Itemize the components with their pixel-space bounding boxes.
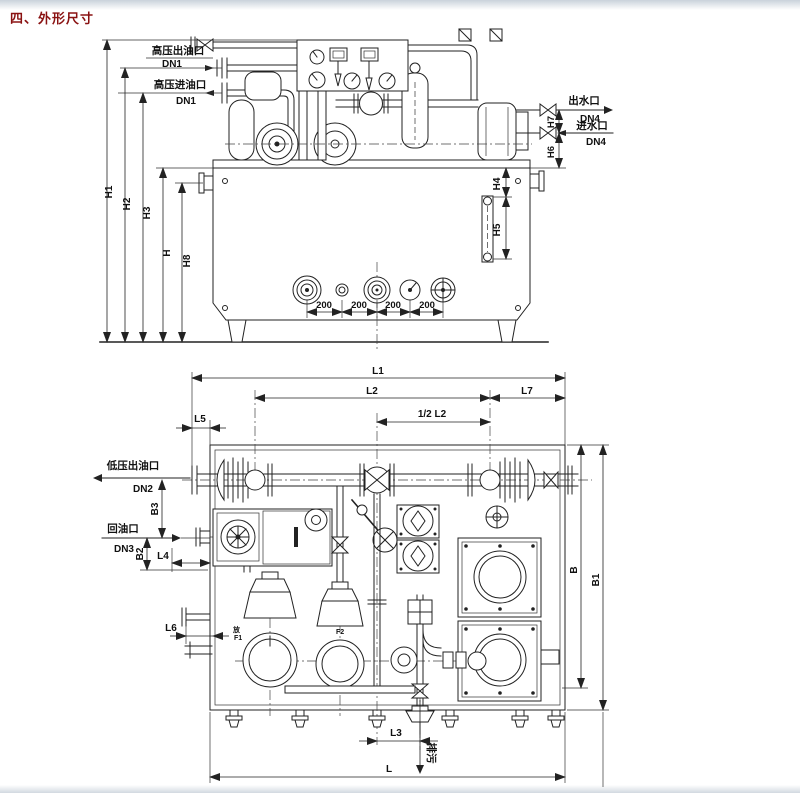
hp-inlet-dn: DN1 bbox=[176, 96, 196, 107]
dim-label-l4: L4 bbox=[157, 551, 169, 562]
dim-label-half-l2: 1/2 L2 bbox=[418, 409, 447, 420]
dim-label-l7: L7 bbox=[521, 386, 533, 397]
tag-drain-valve: 放 bbox=[232, 625, 241, 634]
spacing-label: 200 bbox=[419, 300, 435, 311]
oil-return-port: 回油口 DN3 bbox=[102, 522, 210, 555]
dim-label-l5: L5 bbox=[194, 414, 206, 425]
dim-label-h5: H5 bbox=[492, 223, 503, 236]
dim-label-b3: B3 bbox=[150, 502, 161, 515]
water-inlet-port: 进水口 DN4 bbox=[557, 119, 613, 148]
tag-f2: F2 bbox=[336, 629, 344, 636]
spacing-label: 200 bbox=[351, 300, 367, 311]
switch-icon bbox=[361, 48, 378, 61]
lp-outlet-label: 低压出油口 bbox=[106, 459, 160, 472]
dim-label-h3: H3 bbox=[142, 206, 153, 219]
drain-label: 排污 bbox=[425, 743, 438, 764]
dim-label-h8: H8 bbox=[182, 254, 193, 267]
foot bbox=[369, 710, 385, 727]
pump-top-unit-1 bbox=[458, 538, 541, 617]
dim-label-h: H bbox=[162, 249, 173, 256]
dim-label-h6: H6 bbox=[546, 146, 557, 158]
dim-label-l2: L2 bbox=[366, 386, 378, 397]
foot bbox=[442, 710, 458, 727]
tag-f1: F1 bbox=[234, 635, 242, 642]
foot bbox=[512, 710, 528, 727]
oil-return-dn: DN3 bbox=[114, 544, 134, 555]
hp-inlet-port: 高压进油口 DN1 bbox=[154, 78, 214, 107]
dim-label-b2: B2 bbox=[135, 547, 146, 560]
instrument-panel bbox=[297, 40, 408, 91]
dim-label-l6: L6 bbox=[165, 623, 177, 634]
flow-arrow-icon bbox=[557, 130, 566, 136]
dim-label-b: B bbox=[569, 566, 580, 573]
hp-inlet-label: 高压进油口 bbox=[154, 78, 207, 91]
foot bbox=[226, 710, 242, 727]
dim-label-h7: H7 bbox=[546, 116, 557, 128]
dim-label-l: L bbox=[386, 764, 392, 775]
flow-arrow-icon bbox=[416, 765, 424, 774]
plan-view: 低压出油口 DN2 回油口 DN3 排污 放 F1 F2 bbox=[93, 366, 609, 787]
dimension-drawing: 高压出油口 DN1 高压进油口 DN1 出水口 DN4 进水口 bbox=[0, 0, 800, 793]
foot bbox=[292, 710, 308, 727]
oil-return-label: 回油口 bbox=[107, 522, 139, 535]
spacing-label: 200 bbox=[316, 300, 332, 311]
switch-icon bbox=[330, 48, 347, 61]
flow-arrow-icon bbox=[172, 534, 181, 542]
flow-arrow-icon bbox=[604, 106, 613, 114]
dim-label-b1: B1 bbox=[591, 573, 602, 586]
spacing-label: 200 bbox=[385, 300, 401, 311]
side-stubs bbox=[182, 528, 212, 658]
oil-tank bbox=[100, 168, 548, 350]
lp-outlet-dn: DN2 bbox=[133, 484, 153, 495]
dim-label-h1: H1 bbox=[104, 185, 115, 198]
foot bbox=[548, 710, 564, 727]
dim-label-h4: H4 bbox=[492, 177, 503, 190]
dim-label-l1: L1 bbox=[372, 366, 384, 377]
dim-label-h2: H2 bbox=[122, 197, 133, 210]
page: 四、外形尺寸 bbox=[0, 0, 800, 793]
water-inlet-dn: DN4 bbox=[586, 137, 606, 148]
flow-arrow-icon bbox=[93, 474, 102, 482]
hp-outlet-port: 高压出油口 DN1 bbox=[146, 44, 214, 71]
lp-outlet-port: 低压出油口 DN2 bbox=[93, 459, 190, 495]
front-view: 高压出油口 DN1 高压进油口 DN1 出水口 DN4 进水口 bbox=[100, 29, 613, 350]
hp-outlet-label: 高压出油口 bbox=[152, 44, 205, 57]
dim-label-l3: L3 bbox=[390, 728, 402, 739]
water-inlet-label: 进水口 bbox=[576, 119, 608, 132]
water-outlet-label: 出水口 bbox=[568, 94, 600, 107]
